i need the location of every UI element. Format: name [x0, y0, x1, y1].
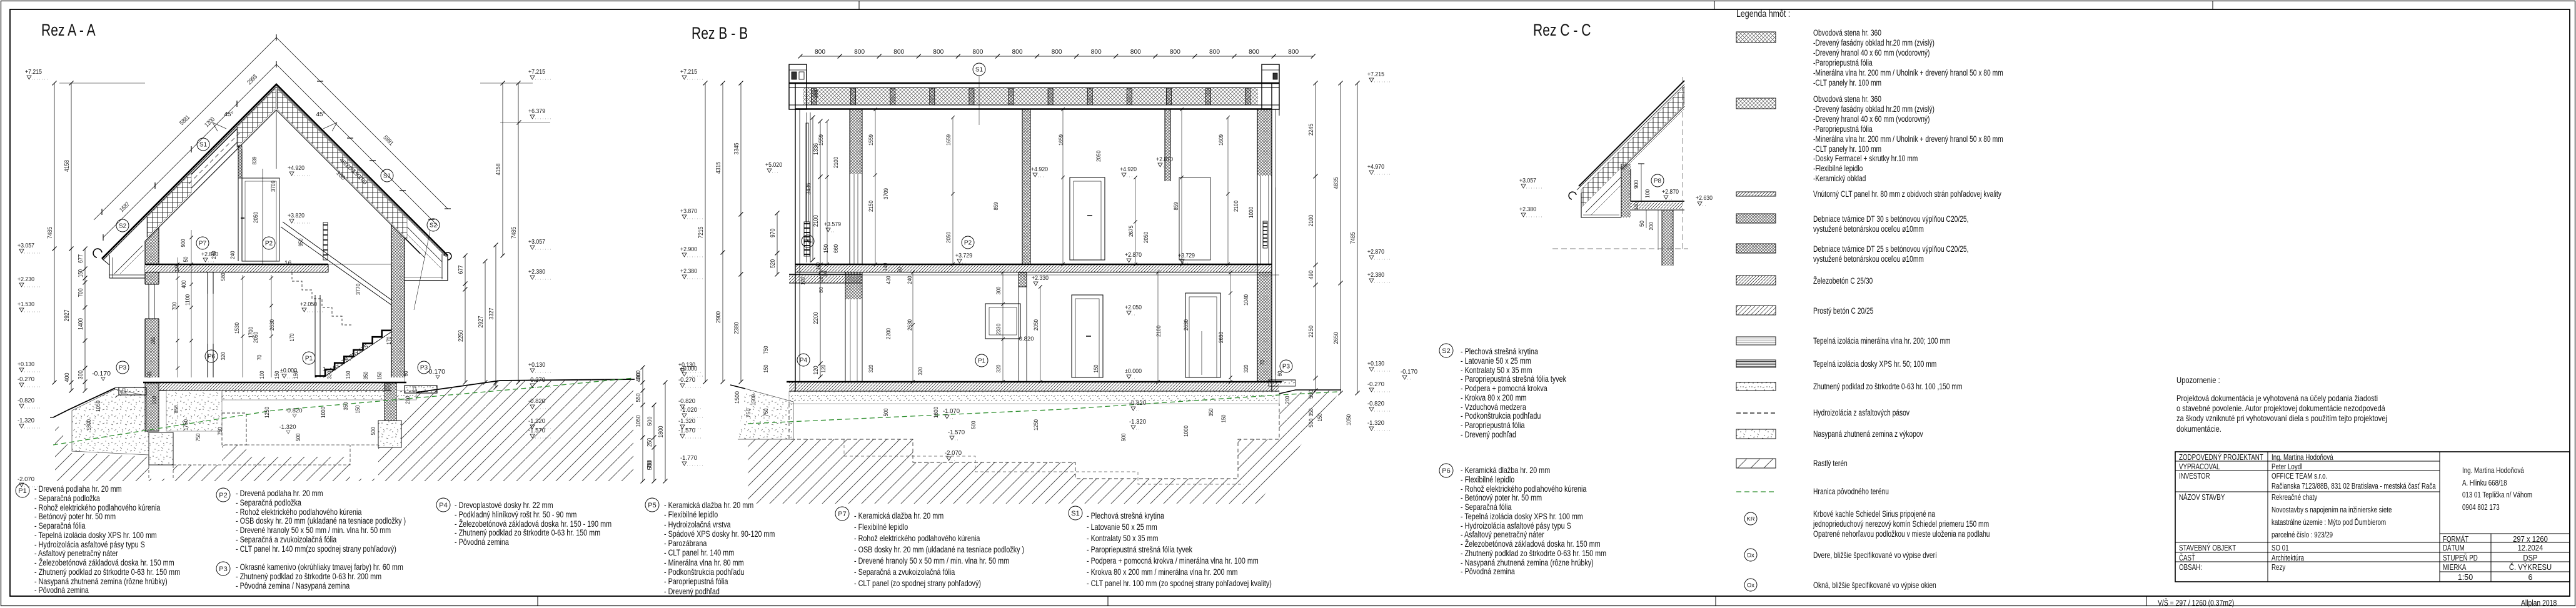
- svg-text:859: 859: [1173, 202, 1180, 211]
- svg-text:970: 970: [770, 229, 777, 237]
- svg-text:120: 120: [820, 365, 827, 373]
- svg-text:850: 850: [173, 406, 180, 414]
- svg-text:140: 140: [815, 262, 821, 270]
- svg-text:800: 800: [1130, 49, 1141, 56]
- svg-text:1800: 1800: [86, 419, 93, 431]
- svg-text:3436: 3436: [805, 182, 812, 194]
- svg-text:350: 350: [363, 372, 370, 380]
- svg-text:3709: 3709: [883, 188, 890, 199]
- svg-text:-1.570: -1.570: [678, 427, 695, 434]
- svg-text:-1.320: -1.320: [279, 424, 296, 430]
- svg-text:-0.270: -0.270: [1367, 381, 1384, 388]
- svg-text:350: 350: [1208, 409, 1215, 417]
- svg-text:-2.070: -2.070: [945, 450, 962, 457]
- svg-text:2630: 2630: [907, 319, 913, 331]
- svg-text:1000: 1000: [320, 407, 327, 418]
- svg-text:4158: 4158: [495, 163, 502, 175]
- svg-text:1500: 1500: [734, 391, 740, 404]
- svg-text:+3.057: +3.057: [1519, 177, 1536, 184]
- svg-text:2100: 2100: [1233, 201, 1240, 212]
- svg-text:70: 70: [1259, 360, 1266, 366]
- svg-text:2050: 2050: [1143, 232, 1150, 243]
- svg-text:1100: 1100: [184, 294, 191, 306]
- svg-text:7215: 7215: [698, 226, 705, 238]
- svg-text:Ox: Ox: [1747, 582, 1754, 589]
- svg-text:677: 677: [78, 254, 84, 263]
- svg-text:240: 240: [907, 276, 913, 284]
- svg-text:430: 430: [885, 276, 892, 284]
- svg-text:1000: 1000: [1248, 207, 1255, 218]
- svg-text:+4.920: +4.920: [1031, 166, 1048, 173]
- svg-text:+7.215: +7.215: [1367, 71, 1384, 78]
- svg-text:60: 60: [403, 371, 410, 377]
- svg-text:320: 320: [917, 367, 924, 376]
- svg-text:240: 240: [211, 251, 218, 259]
- svg-text:150: 150: [274, 371, 281, 379]
- svg-text:+4.970: +4.970: [1367, 164, 1384, 171]
- svg-text:660: 660: [833, 244, 839, 253]
- svg-text:1250: 1250: [1033, 419, 1040, 431]
- svg-text:150: 150: [1220, 415, 1227, 423]
- svg-text:-1.070: -1.070: [943, 408, 960, 415]
- svg-text:-1.320: -1.320: [1367, 420, 1384, 427]
- svg-text:170: 170: [386, 337, 393, 345]
- svg-text:150: 150: [1317, 414, 1324, 422]
- svg-text:+2.380: +2.380: [680, 268, 697, 275]
- svg-text:1050: 1050: [1346, 414, 1352, 426]
- svg-text:1600: 1600: [933, 407, 940, 418]
- svg-text:140: 140: [174, 264, 181, 272]
- svg-text:550: 550: [1308, 390, 1314, 399]
- svg-text:320: 320: [995, 365, 1002, 373]
- svg-text:4158: 4158: [64, 160, 71, 172]
- svg-text:2927: 2927: [478, 316, 485, 327]
- svg-text:+3.057: +3.057: [528, 239, 545, 246]
- svg-text:-0.820: -0.820: [286, 407, 303, 414]
- svg-text:-2.070: -2.070: [18, 476, 34, 483]
- svg-text:240: 240: [150, 337, 157, 345]
- svg-text:839: 839: [251, 157, 258, 165]
- svg-text:-0.170: -0.170: [92, 371, 111, 377]
- svg-text:-0.270: -0.270: [678, 377, 695, 384]
- svg-text:1659: 1659: [945, 134, 952, 146]
- svg-text:3770: 3770: [355, 284, 362, 295]
- svg-text:+3.729: +3.729: [955, 252, 972, 259]
- svg-text:800: 800: [1052, 49, 1062, 56]
- svg-text:+0.130: +0.130: [1367, 361, 1384, 367]
- svg-text:7485: 7485: [511, 227, 518, 239]
- svg-text:P2: P2: [265, 241, 273, 247]
- svg-text:2900: 2900: [715, 311, 722, 323]
- svg-text:60: 60: [146, 372, 153, 378]
- svg-text:2927: 2927: [64, 309, 71, 321]
- svg-text:2050: 2050: [1033, 319, 1040, 331]
- svg-text:150: 150: [355, 406, 361, 414]
- svg-text:2200: 2200: [885, 328, 892, 339]
- svg-text:P7: P7: [199, 241, 207, 247]
- svg-text:+7.215: +7.215: [25, 69, 42, 76]
- svg-text:200: 200: [151, 396, 158, 404]
- svg-text:-1.020: -1.020: [680, 407, 697, 414]
- svg-text:-1.570: -1.570: [528, 427, 545, 434]
- svg-text:2250: 2250: [458, 330, 465, 342]
- svg-text:550: 550: [635, 393, 642, 402]
- svg-text:2100: 2100: [1308, 214, 1315, 226]
- svg-text:S2: S2: [119, 223, 127, 230]
- svg-text:100: 100: [1644, 189, 1651, 198]
- svg-text:2250: 2250: [1308, 326, 1315, 337]
- svg-text:300: 300: [78, 371, 84, 379]
- svg-text:700: 700: [78, 288, 84, 297]
- svg-text:500: 500: [647, 461, 653, 470]
- svg-text:350: 350: [1308, 409, 1315, 417]
- svg-text:1687: 1687: [118, 201, 131, 214]
- svg-text:16.: 16.: [284, 260, 293, 267]
- svg-text:1800: 1800: [658, 426, 665, 437]
- svg-text:2245: 2245: [1308, 124, 1315, 136]
- svg-text:P2: P2: [964, 240, 972, 247]
- svg-text:1609: 1609: [1218, 134, 1225, 146]
- svg-text:1659: 1659: [1058, 134, 1065, 146]
- svg-text:800: 800: [972, 49, 983, 56]
- svg-text:170: 170: [800, 277, 806, 285]
- svg-text:240: 240: [229, 251, 236, 259]
- svg-text:859: 859: [813, 90, 820, 98]
- svg-text:700: 700: [171, 302, 178, 311]
- svg-text:1200: 1200: [203, 116, 216, 129]
- svg-text:80: 80: [822, 271, 828, 277]
- svg-text:+7.215: +7.215: [680, 69, 697, 76]
- svg-text:2630: 2630: [1183, 319, 1190, 331]
- svg-text:P8: P8: [1654, 178, 1662, 185]
- svg-text:+2.230: +2.230: [18, 276, 34, 283]
- svg-text:677: 677: [458, 265, 465, 274]
- svg-text:+2.900: +2.900: [680, 246, 697, 253]
- svg-text:250: 250: [647, 438, 653, 447]
- svg-text:Dx: Dx: [1747, 552, 1754, 559]
- svg-text:150: 150: [763, 365, 770, 373]
- svg-text:45°: 45°: [224, 111, 233, 118]
- svg-text:S2: S2: [430, 222, 438, 229]
- svg-text:+2.050: +2.050: [300, 301, 317, 308]
- svg-text:-1.320: -1.320: [678, 418, 695, 425]
- svg-text:-1.570: -1.570: [948, 429, 965, 436]
- svg-text:P1: P1: [305, 356, 313, 362]
- svg-text:7485: 7485: [47, 227, 54, 239]
- svg-text:P1: P1: [978, 358, 986, 365]
- svg-text:500: 500: [883, 409, 890, 417]
- svg-text:490: 490: [1308, 271, 1315, 279]
- svg-text:5881: 5881: [382, 134, 395, 147]
- svg-text:900: 900: [1633, 180, 1640, 189]
- svg-text:800: 800: [893, 49, 904, 56]
- svg-text:800: 800: [1091, 49, 1102, 56]
- svg-text:140: 140: [1633, 202, 1639, 210]
- svg-text:2050: 2050: [253, 212, 259, 223]
- svg-text:P3: P3: [1282, 364, 1291, 371]
- svg-text:1750: 1750: [183, 419, 189, 431]
- svg-text:200: 200: [1284, 396, 1291, 404]
- svg-text:45°: 45°: [316, 111, 325, 118]
- svg-text:2100: 2100: [1155, 326, 1162, 337]
- svg-text:-0.820: -0.820: [1129, 400, 1146, 407]
- svg-text:±0.000: ±0.000: [1125, 368, 1142, 375]
- svg-text:150: 150: [78, 269, 84, 277]
- svg-text:2050: 2050: [253, 332, 259, 343]
- svg-text:400: 400: [64, 372, 70, 382]
- svg-text:S1: S1: [199, 142, 208, 149]
- svg-text:750: 750: [217, 427, 224, 436]
- svg-text:+2.870: +2.870: [1367, 249, 1384, 256]
- svg-text:P3: P3: [119, 365, 127, 372]
- svg-text:800: 800: [1012, 49, 1023, 56]
- svg-text:+2.380: +2.380: [1519, 206, 1536, 213]
- svg-text:150: 150: [1093, 365, 1100, 373]
- svg-text:-1.770: -1.770: [680, 455, 697, 462]
- svg-text:-0.270: -0.270: [18, 376, 34, 383]
- svg-text:+2.380: +2.380: [528, 269, 545, 276]
- svg-text:200: 200: [1648, 222, 1654, 231]
- svg-text:200: 200: [405, 396, 411, 404]
- svg-text:350: 350: [343, 402, 350, 411]
- svg-text:7485: 7485: [1350, 232, 1357, 244]
- svg-text:2200: 2200: [813, 312, 820, 324]
- svg-text:-1.320: -1.320: [528, 418, 545, 425]
- svg-text:+4.920: +4.920: [1120, 166, 1137, 173]
- svg-text:800: 800: [1170, 49, 1180, 56]
- svg-text:3345: 3345: [733, 142, 740, 154]
- svg-text:2630: 2630: [269, 319, 276, 331]
- svg-text:+6.379: +6.379: [528, 108, 545, 115]
- svg-text:2993: 2993: [246, 73, 259, 86]
- svg-text:-1.320: -1.320: [1129, 419, 1146, 426]
- svg-text:-0.170: -0.170: [426, 369, 445, 376]
- svg-text:500: 500: [647, 416, 653, 426]
- svg-text:1400: 1400: [78, 318, 84, 330]
- svg-text:1050: 1050: [95, 401, 102, 412]
- svg-text:2650: 2650: [1333, 332, 1340, 344]
- svg-text:60: 60: [1277, 371, 1284, 377]
- svg-text:+0.130: +0.130: [528, 362, 545, 369]
- svg-text:2050: 2050: [1095, 151, 1102, 162]
- svg-text:500: 500: [1308, 419, 1314, 427]
- svg-text:+3.729: +3.729: [1178, 252, 1195, 259]
- svg-text:P3: P3: [420, 365, 428, 372]
- svg-text:P1: P1: [18, 487, 26, 495]
- svg-text:-0.820: -0.820: [18, 397, 34, 404]
- svg-text:+2.330: +2.330: [1032, 275, 1049, 282]
- svg-text:500: 500: [970, 421, 977, 429]
- svg-text:70: 70: [256, 355, 263, 361]
- svg-text:KR: KR: [1746, 516, 1754, 522]
- svg-text:+2.870: +2.870: [1662, 189, 1679, 196]
- svg-text:2630: 2630: [1218, 332, 1225, 343]
- svg-text:P4: P4: [800, 357, 808, 364]
- svg-text:320: 320: [326, 371, 333, 379]
- svg-text:4835: 4835: [1333, 177, 1340, 189]
- svg-text:3327: 3327: [488, 307, 495, 319]
- svg-text:150: 150: [345, 371, 352, 379]
- svg-text:320: 320: [220, 352, 227, 361]
- svg-text:2150: 2150: [868, 201, 875, 212]
- svg-text:1050: 1050: [635, 415, 642, 427]
- svg-text:2675: 2675: [1128, 226, 1135, 237]
- svg-text:900: 900: [180, 239, 187, 247]
- svg-text:+0.130: +0.130: [18, 361, 34, 368]
- svg-text:500: 500: [1120, 434, 1127, 442]
- svg-text:±0.000: ±0.000: [680, 366, 697, 372]
- svg-text:580: 580: [220, 273, 227, 281]
- svg-text:100: 100: [259, 371, 266, 379]
- svg-text:-1.320: -1.320: [18, 417, 34, 424]
- svg-text:+2.870: +2.870: [1156, 156, 1173, 163]
- svg-text:+2.380: +2.380: [1367, 272, 1384, 279]
- svg-text:P5: P5: [804, 239, 812, 246]
- svg-text:+2.870: +2.870: [1125, 252, 1142, 259]
- svg-text:750: 750: [745, 409, 752, 418]
- svg-text:500: 500: [370, 427, 377, 436]
- svg-text:2330: 2330: [995, 324, 1002, 335]
- svg-text:P6: P6: [208, 354, 216, 361]
- svg-text:-0.270: -0.270: [528, 377, 545, 384]
- svg-text:50: 50: [1639, 221, 1645, 227]
- svg-text:150: 150: [376, 372, 383, 380]
- svg-text:-0.820: -0.820: [678, 398, 695, 405]
- svg-text:170: 170: [289, 334, 296, 342]
- svg-text:3709: 3709: [270, 181, 277, 192]
- svg-text:859: 859: [993, 202, 1000, 211]
- svg-text:1250: 1250: [264, 407, 271, 418]
- svg-text:+3.579: +3.579: [824, 221, 841, 228]
- svg-text:150: 150: [823, 244, 829, 253]
- svg-text:1000: 1000: [1183, 426, 1190, 437]
- svg-text:P6: P6: [1442, 467, 1450, 475]
- svg-text:800: 800: [1249, 49, 1259, 56]
- svg-text:1559: 1559: [818, 134, 825, 146]
- svg-text:50: 50: [897, 267, 903, 273]
- svg-text:750: 750: [763, 346, 770, 354]
- svg-text:320: 320: [868, 365, 875, 373]
- svg-text:50: 50: [183, 257, 189, 262]
- svg-text:1530: 1530: [234, 322, 241, 334]
- svg-text:950: 950: [298, 239, 304, 247]
- svg-text:+4.920: +4.920: [288, 165, 304, 172]
- svg-text:750: 750: [195, 434, 202, 442]
- svg-text:1500: 1500: [750, 394, 757, 406]
- svg-text:+3.870: +3.870: [680, 208, 697, 215]
- svg-text:1040: 1040: [1243, 294, 1250, 306]
- svg-text:-0.820: -0.820: [528, 398, 545, 405]
- svg-text:800: 800: [1288, 49, 1299, 56]
- svg-text:4315: 4315: [715, 162, 722, 174]
- svg-text:800: 800: [815, 49, 825, 56]
- svg-text:520: 520: [770, 259, 777, 268]
- svg-text:800: 800: [933, 49, 943, 56]
- svg-text:140: 140: [882, 263, 889, 271]
- svg-text:150: 150: [293, 371, 299, 379]
- svg-text:80: 80: [818, 287, 824, 293]
- svg-text:5881: 5881: [178, 114, 191, 127]
- svg-text:-0.820: -0.820: [1367, 401, 1384, 407]
- svg-text:+7.215: +7.215: [528, 69, 545, 76]
- svg-text:300: 300: [995, 287, 1002, 295]
- svg-text:2050: 2050: [945, 232, 952, 243]
- svg-text:+1.530: +1.530: [18, 301, 34, 308]
- svg-text:S2: S2: [1442, 347, 1450, 355]
- svg-text:2380: 2380: [733, 322, 740, 334]
- svg-text:-0.820: -0.820: [1017, 336, 1034, 342]
- svg-text:+3.820: +3.820: [288, 212, 304, 219]
- svg-text:320: 320: [1243, 365, 1250, 373]
- svg-text:+3.057: +3.057: [18, 242, 34, 249]
- svg-text:-0.170: -0.170: [1401, 369, 1417, 376]
- svg-text:400: 400: [635, 372, 641, 382]
- svg-text:1559: 1559: [868, 134, 875, 146]
- svg-text:+2.050: +2.050: [1125, 304, 1142, 311]
- svg-text:800: 800: [1209, 49, 1220, 56]
- svg-text:800: 800: [854, 49, 865, 56]
- svg-text:2100: 2100: [813, 215, 820, 227]
- svg-text:2100: 2100: [833, 157, 840, 168]
- svg-text:400: 400: [181, 281, 188, 289]
- svg-text:+2.630: +2.630: [1696, 195, 1713, 202]
- svg-text:S1: S1: [975, 67, 984, 74]
- svg-text:16x178,75x275: 16x178,75x275: [329, 343, 370, 374]
- svg-text:500: 500: [295, 434, 302, 442]
- svg-text:750: 750: [763, 409, 770, 417]
- svg-text:S1: S1: [383, 173, 391, 180]
- svg-text:+5.020: +5.020: [765, 162, 782, 169]
- svg-text:120: 120: [813, 366, 820, 374]
